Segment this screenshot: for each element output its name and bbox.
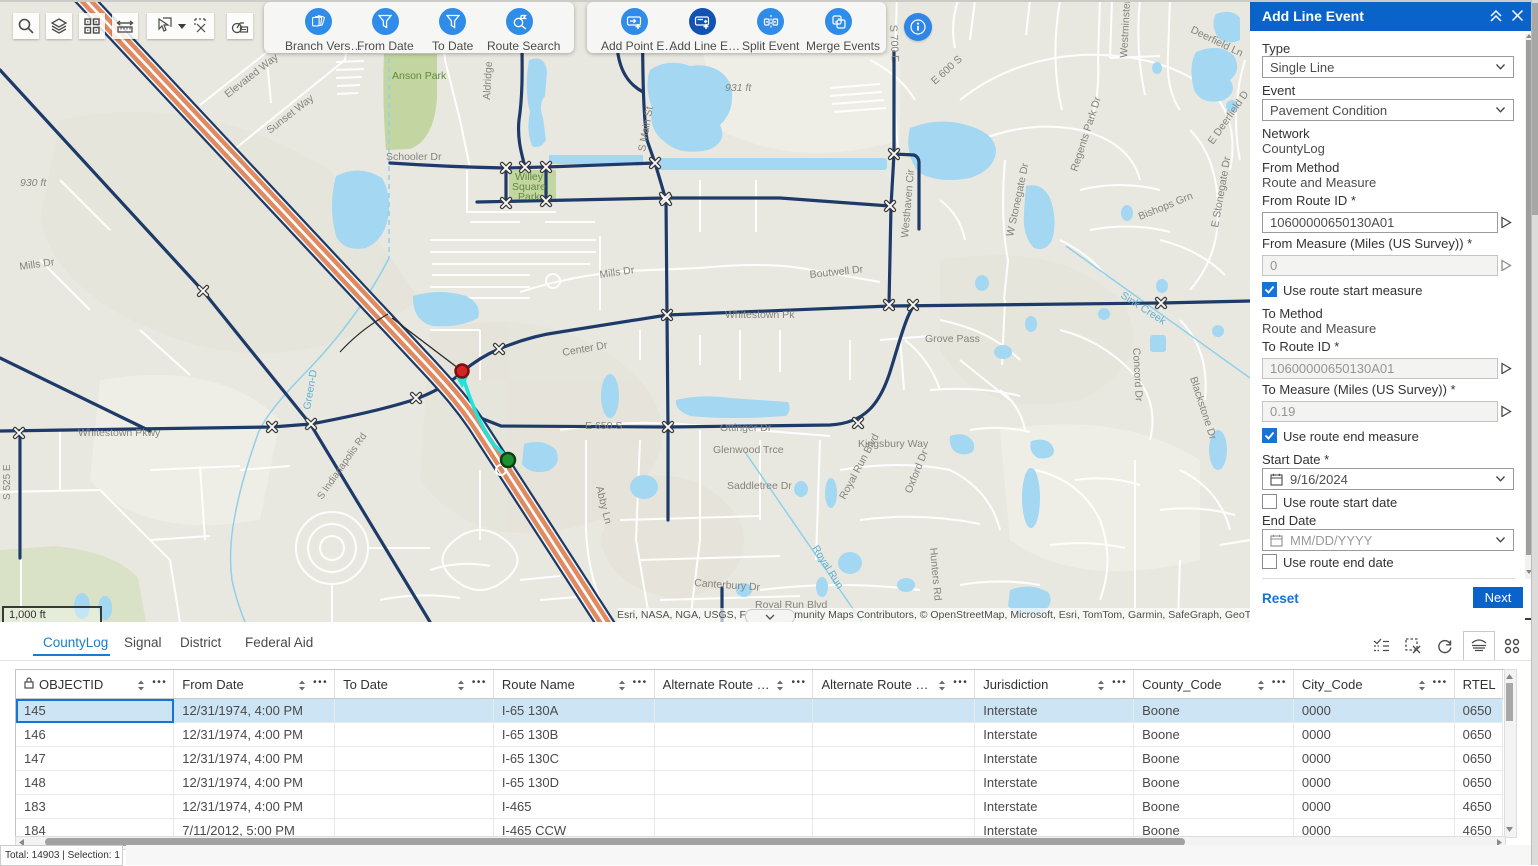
svg-text:Whitestown Pk: Whitestown Pk: [725, 309, 795, 321]
svg-text:931 ft: 931 ft: [725, 82, 752, 94]
svg-text:Park: Park: [518, 191, 540, 203]
svg-text:930 ft: 930 ft: [20, 177, 47, 189]
svg-text:E 650 S: E 650 S: [585, 420, 622, 432]
svg-text:Schooler Dr: Schooler Dr: [386, 151, 442, 163]
svg-text:S 525 E: S 525 E: [2, 464, 13, 500]
svg-text:Saddletree Dr: Saddletree Dr: [727, 480, 792, 492]
svg-text:Aldridge: Aldridge: [481, 61, 495, 100]
svg-text:Anson Park: Anson Park: [392, 70, 447, 82]
svg-text:Whitestown Pkwy: Whitestown Pkwy: [78, 427, 161, 439]
svg-text:S 700 E: S 700 E: [887, 25, 901, 63]
svg-text:Ottinger Dr: Ottinger Dr: [720, 422, 772, 434]
svg-text:Grove Pass: Grove Pass: [925, 333, 980, 345]
svg-text:Glenwood Trce: Glenwood Trce: [713, 444, 784, 456]
